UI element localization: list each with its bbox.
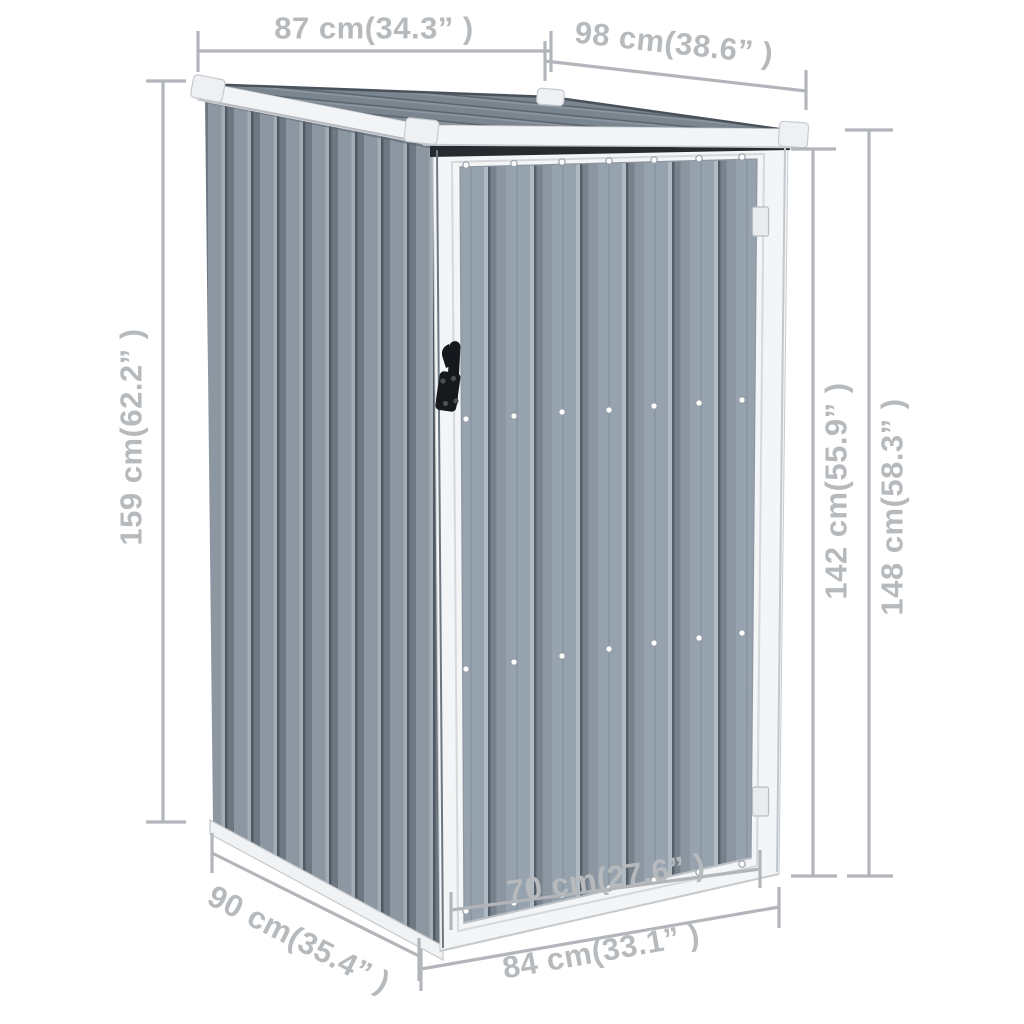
dimension-label-148cm: 148 cm(58.3” ) <box>875 398 910 615</box>
roof-corner-cap-back-right <box>536 88 564 106</box>
door-hinge-top <box>753 207 769 236</box>
roof-corner-cap-front-left <box>404 117 439 144</box>
dimension-159cm-lines <box>146 81 186 822</box>
shed-illustration <box>190 74 809 960</box>
side-wall-panel <box>205 97 443 950</box>
dimension-label-87cm: 87 cm(34.3” ) <box>274 11 474 46</box>
roof-corner-cap-back-left <box>190 74 226 103</box>
dimension-label-159cm: 159 cm(62.2” ) <box>114 328 149 545</box>
shed-dimension-diagram: 87 cm(34.3” ) 98 cm(38.6” ) 159 cm(62.2”… <box>0 0 1024 1024</box>
door-hinge-bottom <box>753 787 769 816</box>
product-diagram-canvas: 87 cm(34.3” ) 98 cm(38.6” ) 159 cm(62.2”… <box>0 0 1024 1024</box>
dimension-label-142cm: 142 cm(55.9” ) <box>819 382 854 599</box>
roof-corner-cap-front-right <box>778 121 809 148</box>
dimension-label-98cm: 98 cm(38.6” ) <box>573 15 775 72</box>
door-panel <box>460 159 757 923</box>
